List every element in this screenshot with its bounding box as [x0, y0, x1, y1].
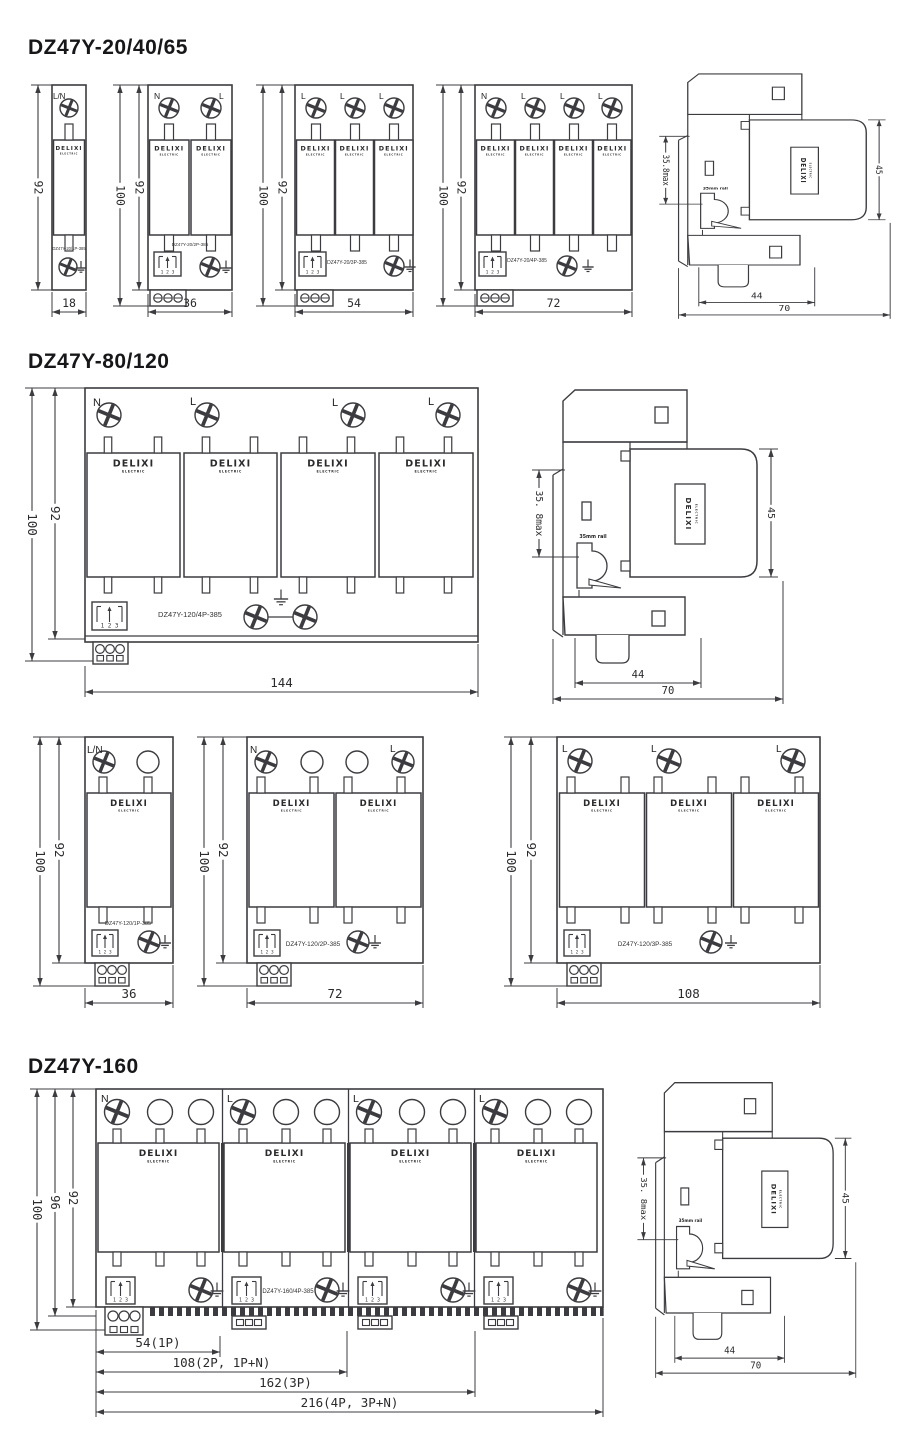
- dimension-label: 92: [31, 181, 45, 195]
- terminal-tab: [299, 437, 307, 453]
- terminal-tab: [165, 124, 174, 140]
- terminal-tab: [444, 577, 452, 593]
- brand-logo: DELIXI: [405, 459, 446, 470]
- brand-logo: DELIXI: [339, 145, 369, 153]
- brand-logo: DELIXI: [519, 145, 549, 153]
- wiring-connector: [93, 642, 128, 664]
- brand-sub: ELECTRIC: [147, 1160, 169, 1164]
- dimension-label: 162(3P): [259, 1375, 312, 1390]
- dimension-label: 35.8max: [661, 155, 672, 186]
- terminal-label: N: [250, 745, 257, 756]
- terminal-tab: [299, 577, 307, 593]
- dimension-label: 36: [183, 296, 197, 310]
- terminal-tab: [99, 777, 107, 793]
- dimension-label: 92: [48, 506, 63, 521]
- dimension-label: 216(4P, 3P+N): [301, 1395, 399, 1410]
- terminal-tab: [621, 777, 629, 793]
- connector-terminal: [130, 1311, 140, 1321]
- terminal-tab: [207, 124, 216, 140]
- dimension-label: 100: [256, 185, 270, 206]
- connector-terminal: [119, 1311, 129, 1321]
- connector-pin: [498, 1320, 505, 1326]
- dimension-label: 35. 8max: [638, 1177, 648, 1220]
- terminal-tab: [575, 1129, 583, 1143]
- brand-sub: ELECTRIC: [368, 809, 390, 813]
- connector-pin: [381, 1320, 388, 1326]
- brand-logo: DELIXI: [799, 158, 807, 184]
- dimension-label: 92: [524, 842, 539, 857]
- side-lower-ear: [688, 235, 800, 265]
- brand-sub: ELECTRIC: [765, 809, 787, 813]
- brand-logo: DELIXI: [196, 145, 226, 153]
- terminal-label: L: [776, 744, 782, 755]
- terminal-label: L/N: [87, 745, 103, 756]
- terminal-tab: [197, 1129, 205, 1143]
- dimension-label: 44: [751, 292, 763, 301]
- rail-hole-icon: [655, 407, 668, 423]
- body-tab: [621, 451, 630, 461]
- body-tab: [715, 1140, 723, 1149]
- brand-logo: DELIXI: [300, 145, 330, 153]
- terminal-label: N: [154, 91, 160, 101]
- terminal-tab: [492, 124, 501, 140]
- counter-digits: 1 2 3: [570, 950, 584, 956]
- dimension-label: 100: [113, 185, 127, 206]
- rail-note-label: 35mm rail: [703, 186, 729, 191]
- terminal-label: L: [598, 91, 603, 101]
- dimension-label: 70: [750, 1360, 761, 1371]
- terminal-tab: [570, 124, 579, 140]
- brand-sub: ELECTRIC: [564, 153, 583, 157]
- terminal-tab: [390, 235, 399, 251]
- connector-terminal: [570, 966, 579, 975]
- model-label: DZ47Y-20/2P-385: [172, 242, 209, 247]
- terminal-tab: [531, 124, 540, 140]
- counter-digits: 1 2 3: [113, 1298, 128, 1304]
- dimension-label: 18: [62, 296, 76, 310]
- terminal-label: L: [479, 1093, 485, 1105]
- dimension-label: 45: [765, 507, 776, 519]
- terminal-tab: [156, 1129, 164, 1143]
- dimension-label: 36: [121, 986, 136, 1001]
- brand-sub: ELECTRIC: [525, 1160, 547, 1164]
- counter-window: 1 2 3: [254, 930, 280, 956]
- counter-window: 1 2 3: [479, 252, 506, 276]
- rail-note-label: 35mm rail: [579, 534, 607, 540]
- connector-terminal: [108, 966, 117, 975]
- terminal-label: L: [340, 91, 345, 101]
- rail-slot: [582, 502, 591, 520]
- dimension-label: 54: [347, 296, 361, 310]
- connector-terminal: [260, 966, 269, 975]
- terminal-tab: [154, 577, 162, 593]
- terminal-tab: [282, 1252, 290, 1266]
- terminal-tab: [239, 1252, 247, 1266]
- brand-sub: ELECTRIC: [809, 163, 812, 179]
- brand-sub: ELECTRIC: [160, 153, 179, 157]
- wiring-connector: [484, 1316, 518, 1329]
- terminal-label: L: [379, 91, 384, 101]
- terminal-tab: [491, 1129, 499, 1143]
- connector-pin: [237, 1320, 244, 1326]
- connector-pin: [489, 1320, 496, 1326]
- terminal-hole: [526, 1100, 551, 1125]
- connector-pin: [591, 978, 598, 984]
- brand-logo: DELIXI: [391, 1149, 431, 1159]
- rail-hole-icon: [744, 1099, 755, 1114]
- brand-sub: ELECTRIC: [281, 809, 303, 813]
- terminal-tab: [396, 577, 404, 593]
- brand-logo: DELIXI: [210, 459, 251, 470]
- dimension-label: 45: [873, 165, 884, 174]
- terminal-tab: [708, 907, 716, 923]
- terminal-tab: [323, 1252, 331, 1266]
- terminal-hole: [567, 1100, 592, 1125]
- rail-hole-icon: [772, 87, 784, 99]
- terminal-tab: [567, 777, 575, 793]
- model-label: DZ47Y-120/3P-385: [618, 941, 673, 948]
- counter-digits: 1 2 3: [306, 270, 320, 276]
- dimension-label: 70: [779, 305, 791, 314]
- terminal-label: L: [190, 396, 196, 408]
- terminal-tab: [531, 235, 540, 251]
- model-label: DZ47Y-20/4P-385: [507, 258, 547, 264]
- terminal-tab: [397, 907, 405, 923]
- side-foot: [693, 1313, 722, 1339]
- dimension-label: 45: [840, 1193, 850, 1204]
- brand-sub: ELECTRIC: [122, 470, 145, 474]
- connector-pin: [107, 656, 114, 662]
- connector-pin: [363, 1320, 370, 1326]
- brand-logo: DELIXI: [110, 799, 148, 809]
- brand-sub: ELECTRIC: [273, 1160, 295, 1164]
- terminal-tab: [397, 777, 405, 793]
- wiring-connector: [257, 963, 291, 986]
- terminal-label: L: [428, 396, 434, 408]
- connector-pin: [99, 978, 106, 984]
- dimension-label: 54(1P): [135, 1335, 180, 1350]
- brand-sub: ELECTRIC: [414, 470, 437, 474]
- model-label: DZ47Y-20/1P-385: [52, 246, 86, 251]
- terminal-tab: [390, 124, 399, 140]
- rail-hole-icon: [770, 246, 782, 258]
- brand-sub: ELECTRIC: [591, 809, 613, 813]
- dimension-label: 92: [66, 1191, 80, 1205]
- wiring-connector: [567, 963, 601, 986]
- brand-logo: DELIXI: [154, 145, 184, 153]
- counter-digits: 1 2 3: [486, 270, 500, 276]
- counter-window: 1 2 3: [564, 930, 590, 956]
- terminal-tab: [113, 1252, 121, 1266]
- terminal-hole: [137, 751, 159, 773]
- technical-drawing-page: DZ47Y-20/40/65DZ47Y-80/120DZ47Y-160DELIX…: [0, 0, 900, 1455]
- connector-terminal: [106, 645, 115, 654]
- terminal-hole: [346, 751, 368, 773]
- dimension-label: 70: [662, 685, 675, 697]
- brand-logo: DELIXI: [480, 145, 510, 153]
- terminal-tab: [741, 777, 749, 793]
- section-title: DZ47Y-20/40/65: [28, 36, 188, 59]
- counter-digits: 1 2 3: [161, 270, 175, 276]
- counter-window: 1 2 3: [154, 252, 181, 276]
- terminal-hole: [274, 1100, 299, 1125]
- body-tab: [621, 561, 630, 571]
- connector-pin: [507, 1320, 514, 1326]
- brand-logo: DELIXI: [517, 1149, 557, 1159]
- rail-note-label: 35mm rail: [679, 1218, 703, 1224]
- model-label: DZ47Y-160/4P-385: [262, 1289, 314, 1295]
- terminal-tab: [365, 1129, 373, 1143]
- connector-pin: [255, 1320, 262, 1326]
- brand-logo: DELIXI: [583, 799, 621, 809]
- side-lower-ear: [664, 1277, 770, 1313]
- connector-terminal: [108, 1311, 118, 1321]
- counter-digits: 1 2 3: [260, 950, 274, 956]
- connector-pin: [271, 978, 278, 984]
- dimension-label: 44: [632, 669, 645, 681]
- brand-sub: ELECTRIC: [399, 1160, 421, 1164]
- terminal-tab: [250, 437, 258, 453]
- terminal-label: L: [562, 744, 568, 755]
- terminal-tab: [347, 577, 355, 593]
- brand-sub: ELECTRIC: [678, 809, 700, 813]
- terminal-label: L: [219, 91, 224, 101]
- terminal-label: L: [353, 1093, 359, 1105]
- brand-logo: DELIXI: [597, 145, 627, 153]
- terminal-tab: [257, 777, 265, 793]
- brand-logo: DELIXI: [757, 799, 795, 809]
- terminal-tab: [492, 235, 501, 251]
- terminal-tab: [444, 437, 452, 453]
- body-tab: [741, 121, 749, 129]
- connector-pin: [97, 656, 104, 662]
- terminal-tab: [257, 907, 265, 923]
- terminal-tab: [575, 1252, 583, 1266]
- connector-pin: [261, 978, 268, 984]
- brand-logo: DELIXI: [113, 459, 154, 470]
- counter-digits: 1 2 3: [98, 950, 112, 956]
- brand-sub: ELECTRIC: [219, 470, 242, 474]
- brand-sub: ELECTRIC: [779, 1190, 783, 1209]
- brand-sub: ELECTRIC: [486, 153, 505, 157]
- terminal-tab: [708, 777, 716, 793]
- dimension-label: 92: [216, 842, 231, 857]
- dimension-label: 92: [52, 842, 67, 857]
- terminal-label: L: [301, 91, 306, 101]
- dimension-label: 100: [436, 185, 450, 206]
- terminal-tab: [347, 437, 355, 453]
- counter-window: 1 2 3: [232, 1277, 261, 1304]
- terminal-label: L: [651, 744, 657, 755]
- dimension-label: 100: [25, 513, 40, 536]
- terminal-tab: [396, 437, 404, 453]
- brand-logo: DELIXI: [379, 145, 409, 153]
- terminal-tab: [65, 124, 73, 140]
- brand-sub: ELECTRIC: [384, 153, 403, 157]
- terminal-label: N: [101, 1093, 109, 1105]
- brand-logo: DELIXI: [273, 799, 311, 809]
- terminal-tab: [104, 577, 112, 593]
- dimension-label: 96: [48, 1195, 62, 1209]
- dimension-label: 92: [454, 181, 468, 195]
- terminal-label: L: [521, 91, 526, 101]
- terminal-tab: [312, 235, 321, 251]
- terminal-tab: [449, 1129, 457, 1143]
- terminal-label: N: [481, 91, 487, 101]
- connector-terminal: [270, 966, 279, 975]
- model-label: DZ47Y-120/1P-385: [105, 921, 151, 927]
- model-label: DZ47Y-120/4P-385: [158, 610, 222, 619]
- rail-hole-icon: [742, 1290, 753, 1304]
- brand-logo: DELIXI: [55, 146, 82, 152]
- wiring-connector: [150, 290, 186, 306]
- wiring-connector: [95, 963, 129, 986]
- counter-window: 1 2 3: [92, 930, 118, 956]
- terminal-tab: [250, 577, 258, 593]
- side-foot: [718, 265, 748, 287]
- dimension-label: 72: [327, 986, 342, 1001]
- connector-pin: [571, 978, 578, 984]
- terminal-tab: [197, 1252, 205, 1266]
- wiring-connector: [232, 1316, 266, 1329]
- terminal-tab: [449, 1252, 457, 1266]
- connector-terminal: [580, 966, 589, 975]
- connector-pin: [117, 656, 124, 662]
- wiring-connector: [477, 290, 513, 306]
- terminal-label: L: [332, 397, 338, 409]
- terminal-tab: [534, 1129, 542, 1143]
- brand-logo: DELIXI: [265, 1149, 305, 1159]
- brand-sub: ELECTRIC: [695, 504, 699, 524]
- counter-digits: 1 2 3: [101, 623, 119, 630]
- terminal-tab: [312, 124, 321, 140]
- dimension-label: 92: [275, 181, 289, 195]
- dimension-label: 100: [197, 850, 212, 873]
- wiring-connector: [297, 290, 333, 306]
- counter-digits: 1 2 3: [365, 1298, 380, 1304]
- connector-terminal: [118, 966, 127, 975]
- terminal-tab: [795, 777, 803, 793]
- terminal-tab: [795, 907, 803, 923]
- terminal-tab: [202, 437, 210, 453]
- section-title: DZ47Y-80/120: [28, 350, 169, 373]
- connector-pin: [119, 978, 126, 984]
- terminal-tab: [491, 1252, 499, 1266]
- counter-window: 1 2 3: [299, 252, 326, 276]
- terminal-label: L: [390, 744, 396, 755]
- terminal-tab: [365, 1252, 373, 1266]
- side-lower-ear: [563, 597, 685, 635]
- terminal-tab: [534, 1252, 542, 1266]
- counter-digits: 1 2 3: [491, 1298, 506, 1304]
- terminal-tab: [310, 907, 318, 923]
- terminal-tab: [654, 777, 662, 793]
- connector-pin: [246, 1320, 253, 1326]
- connector-pin: [110, 1327, 117, 1333]
- terminal-label: N: [93, 397, 101, 409]
- terminal-tab: [408, 1129, 416, 1143]
- counter-window: 1 2 3: [484, 1277, 513, 1304]
- terminal-tab: [621, 907, 629, 923]
- terminal-tab: [351, 235, 360, 251]
- wiring-connector: [358, 1316, 392, 1329]
- terminal-tab: [113, 1129, 121, 1143]
- terminal-tab: [608, 124, 617, 140]
- brand-sub: ELECTRIC: [306, 153, 325, 157]
- terminal-tab: [202, 577, 210, 593]
- connector-pin: [581, 978, 588, 984]
- terminal-tab: [570, 235, 579, 251]
- rail-slot: [705, 161, 713, 175]
- brand-logo: DELIXI: [307, 459, 348, 470]
- section-title: DZ47Y-160: [28, 1055, 139, 1078]
- terminal-tab: [323, 1129, 331, 1143]
- connector-terminal: [96, 645, 105, 654]
- brand-sub: ELECTRIC: [60, 153, 78, 156]
- terminal-tab: [408, 1252, 416, 1266]
- connector-pin: [109, 978, 116, 984]
- terminal-tab: [344, 907, 352, 923]
- terminal-tab: [282, 1129, 290, 1143]
- brand-sub: ELECTRIC: [201, 153, 220, 157]
- counter-window: 1 2 3: [92, 602, 127, 630]
- counter-window: 1 2 3: [106, 1277, 135, 1304]
- dimension-label: 100: [504, 850, 519, 873]
- terminal-tab: [567, 907, 575, 923]
- model-label: DZ47Y-120/2P-385: [286, 941, 341, 948]
- terminal-hole: [441, 1100, 466, 1125]
- brand-sub: ELECTRIC: [316, 470, 339, 474]
- terminal-hole: [301, 751, 323, 773]
- terminal-tab: [344, 777, 352, 793]
- dimension-label: 35. 8max: [533, 491, 544, 537]
- rail-slot: [681, 1188, 689, 1205]
- terminal-tab: [154, 437, 162, 453]
- dimension-label: 92: [132, 181, 146, 195]
- dimension-label: 44: [724, 1345, 735, 1356]
- brand-logo: DELIXI: [670, 799, 708, 809]
- dimension-label: 144: [270, 675, 293, 690]
- model-label: DZ47Y-20/3P-385: [327, 260, 367, 266]
- brand-logo: DELIXI: [769, 1184, 777, 1215]
- connector-pin: [121, 1327, 128, 1333]
- brand-logo: DELIXI: [139, 1149, 179, 1159]
- terminal-tab: [239, 1129, 247, 1143]
- counter-digits: 1 2 3: [239, 1298, 254, 1304]
- brand-sub: ELECTRIC: [603, 153, 622, 157]
- terminal-hole: [400, 1100, 425, 1125]
- terminal-tab: [156, 1252, 164, 1266]
- rail-hole-icon: [652, 611, 665, 626]
- terminal-tab: [654, 907, 662, 923]
- terminal-tab: [741, 907, 749, 923]
- terminal-label: L: [227, 1093, 233, 1105]
- dimension-label: 72: [547, 296, 561, 310]
- terminal-hole: [148, 1100, 173, 1125]
- connector-terminal: [590, 966, 599, 975]
- dz47y-dimension-drawing: DZ47Y-20/40/65DZ47Y-80/120DZ47Y-160DELIX…: [0, 0, 900, 1455]
- terminal-label: L/N: [53, 92, 66, 101]
- terminal-hole: [189, 1100, 214, 1125]
- connector-terminal: [98, 966, 107, 975]
- connector-pin: [131, 1327, 138, 1333]
- connector-pin: [281, 978, 288, 984]
- terminal-tab: [351, 124, 360, 140]
- dimension-label: 108(2P, 1P+N): [173, 1355, 271, 1370]
- wiring-connector: [105, 1307, 143, 1335]
- connector-terminal: [116, 645, 125, 654]
- terminal-hole: [315, 1100, 340, 1125]
